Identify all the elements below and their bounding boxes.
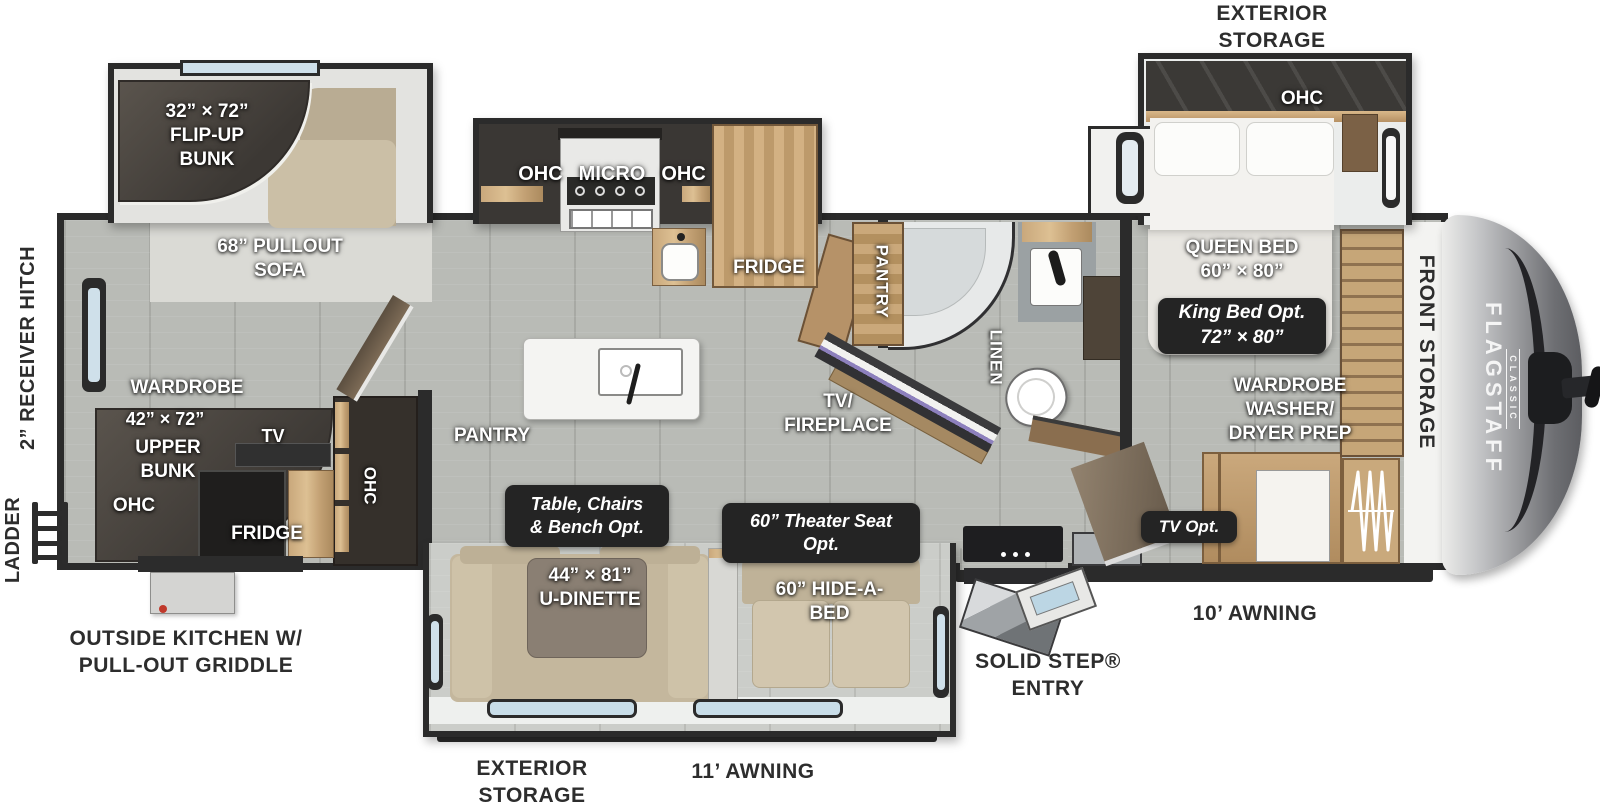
dinette-slide-window-left <box>487 699 637 718</box>
label-ohc-right: OHC <box>661 162 705 187</box>
ladder-icon <box>32 502 72 564</box>
bedroom-wardrobe-cabinet <box>1202 452 1342 564</box>
label-micro: MICRO <box>579 162 646 187</box>
label-awning-10: 10’ AWNING <box>1155 600 1355 627</box>
kitchen-island <box>523 338 700 420</box>
label-queen-bed: QUEEN BED 60” × 80” <box>1152 236 1332 284</box>
dinette-slide-window-right <box>693 699 843 718</box>
option-king-bed: King Bed Opt. 72” × 80” <box>1158 298 1326 354</box>
option-table-chairs: Table, Chairs & Bench Opt. <box>505 485 669 547</box>
label-exterior-storage-top: EXTERIOR STORAGE <box>1172 0 1372 55</box>
label-rear-ohc-side: OHC <box>359 451 380 521</box>
label-u-dinette: 44” × 81” U-DINETTE <box>510 564 670 612</box>
kitchen-counter-left <box>481 186 543 202</box>
outside-kitchen-box <box>150 572 235 614</box>
label-flip-up-bunk: 32” × 72” FLIP-UP BUNK <box>122 100 292 171</box>
coat-spring-icon <box>1344 460 1398 562</box>
label-outside-kitchen: OUTSIDE KITCHEN W/ PULL-OUT GRIDDLE <box>36 625 336 680</box>
island-sink <box>598 348 683 396</box>
label-kitchen-ohc-row: OHC MICRO OHC <box>492 162 732 187</box>
label-pullout-sofa: 68” PULLOUT SOFA <box>190 235 370 283</box>
washer-dryer-prep-space <box>1256 470 1330 562</box>
bedroom-slide-window <box>1382 128 1400 208</box>
shower-pan <box>898 228 986 316</box>
label-rear-wardrobe: WARDROBE <box>107 376 267 400</box>
label-solid-step-entry: SOLID STEP® ENTRY <box>958 648 1138 703</box>
label-receiver-hitch: 2” RECEIVER HITCH <box>15 218 41 478</box>
galley-sink <box>661 243 699 281</box>
wardrobe-hanging-section <box>1342 458 1400 564</box>
label-exterior-storage-bottom: EXTERIOR STORAGE <box>432 755 632 810</box>
label-awning-11: 11’ AWNING <box>653 758 853 785</box>
label-front-storage: FRONT STORAGE <box>1414 232 1440 472</box>
brand-series: CLASSIC <box>1506 349 1520 429</box>
linen-cabinet <box>1083 276 1121 360</box>
label-tv-fireplace: TV/ FIREPLACE <box>778 390 898 438</box>
slide-partition <box>708 548 738 700</box>
label-upper-bunk: UPPER BUNK <box>108 436 228 484</box>
label-bath-pantry: PANTRY <box>871 227 892 337</box>
rear-wall-window <box>82 278 106 392</box>
brand-name: FLAGSTAFF <box>1480 302 1506 476</box>
label-kitchen-fridge: FRIDGE <box>719 256 819 280</box>
griddle-knob <box>159 605 167 613</box>
bunk-slide-window <box>180 60 320 76</box>
brand-logo: CLASSIC FLAGSTAFF <box>1477 279 1523 499</box>
rear-ohc-shelf-3 <box>335 506 349 552</box>
label-ohc-left: OHC <box>518 162 562 187</box>
label-rear-tv: TV <box>245 425 301 448</box>
label-bedroom-ohc: OHC <box>1262 87 1342 111</box>
label-wardrobe-washer-dryer: WARDROBE WASHER/ DRYER PREP <box>1195 374 1385 445</box>
pillow-right <box>1246 122 1334 176</box>
floorplan-diagram: CLASSIC FLAGSTAFF 32” × 72” FLIP-UP BUNK… <box>0 0 1600 811</box>
bedroom-nightstand <box>1342 114 1378 172</box>
galley-sink-cabinet <box>652 228 706 286</box>
pullout-griddle-tray <box>138 556 303 572</box>
option-tv: TV Opt. <box>1141 511 1237 543</box>
slide-right-wall-window <box>933 606 949 698</box>
label-rear-ohc-bottom: OHC <box>94 494 174 518</box>
bath-shelf <box>1022 222 1092 242</box>
label-linen: LINEN <box>985 313 1006 403</box>
oven-front <box>569 209 653 229</box>
slide-left-wall-window <box>427 614 443 690</box>
option-theater-seat: 60” Theater Seat Opt. <box>722 503 920 563</box>
bedroom-divider-wall <box>1120 220 1132 464</box>
label-pantry-main: PANTRY <box>440 424 544 448</box>
label-hide-a-bed: 60” HIDE-A- BED <box>752 578 907 626</box>
pillow-left <box>1154 122 1240 176</box>
rear-wall-window-glass <box>88 288 100 382</box>
kitchen-counter-right <box>682 186 710 202</box>
label-ladder: LADDER <box>0 475 24 605</box>
rear-ohc-shelf-1 <box>335 402 349 448</box>
entry-step-well <box>963 526 1063 562</box>
label-upper-bunk-size: 42” × 72” <box>95 408 235 431</box>
rear-ohc-shelf-2 <box>335 454 349 500</box>
flare-window <box>1116 132 1144 204</box>
label-rear-fridge: FRIDGE <box>215 522 319 546</box>
